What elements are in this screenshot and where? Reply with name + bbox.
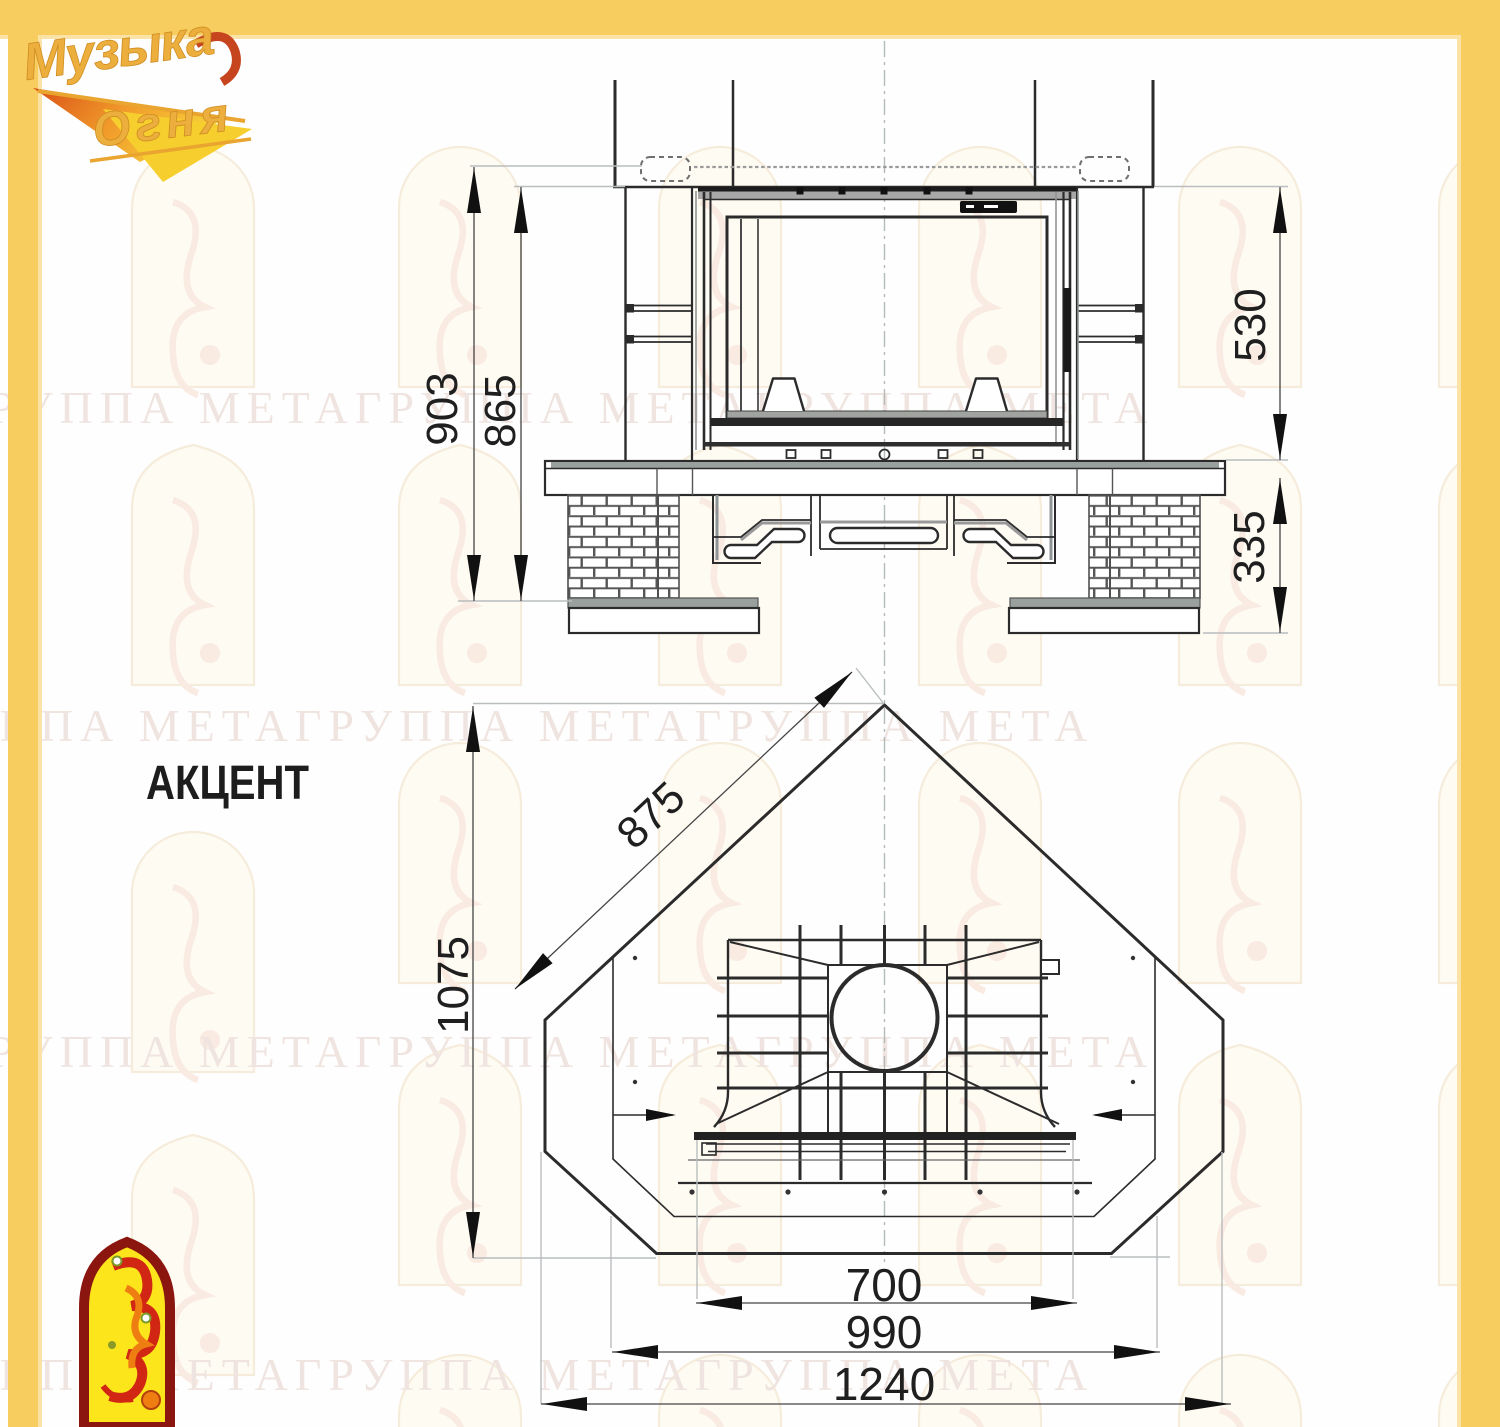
svg-text:335: 335 — [1225, 510, 1274, 583]
svg-text:700: 700 — [846, 1259, 923, 1311]
svg-text:865: 865 — [476, 374, 525, 447]
svg-text:1075: 1075 — [429, 936, 478, 1034]
svg-text:1240: 1240 — [833, 1358, 935, 1410]
svg-text:990: 990 — [846, 1306, 923, 1358]
svg-text:АКЦЕНТ: АКЦЕНТ — [146, 757, 309, 810]
svg-text:ГРУППА МЕТАГРУППА МЕТАГРУППА М: ГРУППА МЕТАГРУППА МЕТАГРУППА МЕТА — [0, 700, 1094, 751]
svg-text:903: 903 — [418, 372, 467, 445]
svg-text:530: 530 — [1226, 288, 1275, 361]
